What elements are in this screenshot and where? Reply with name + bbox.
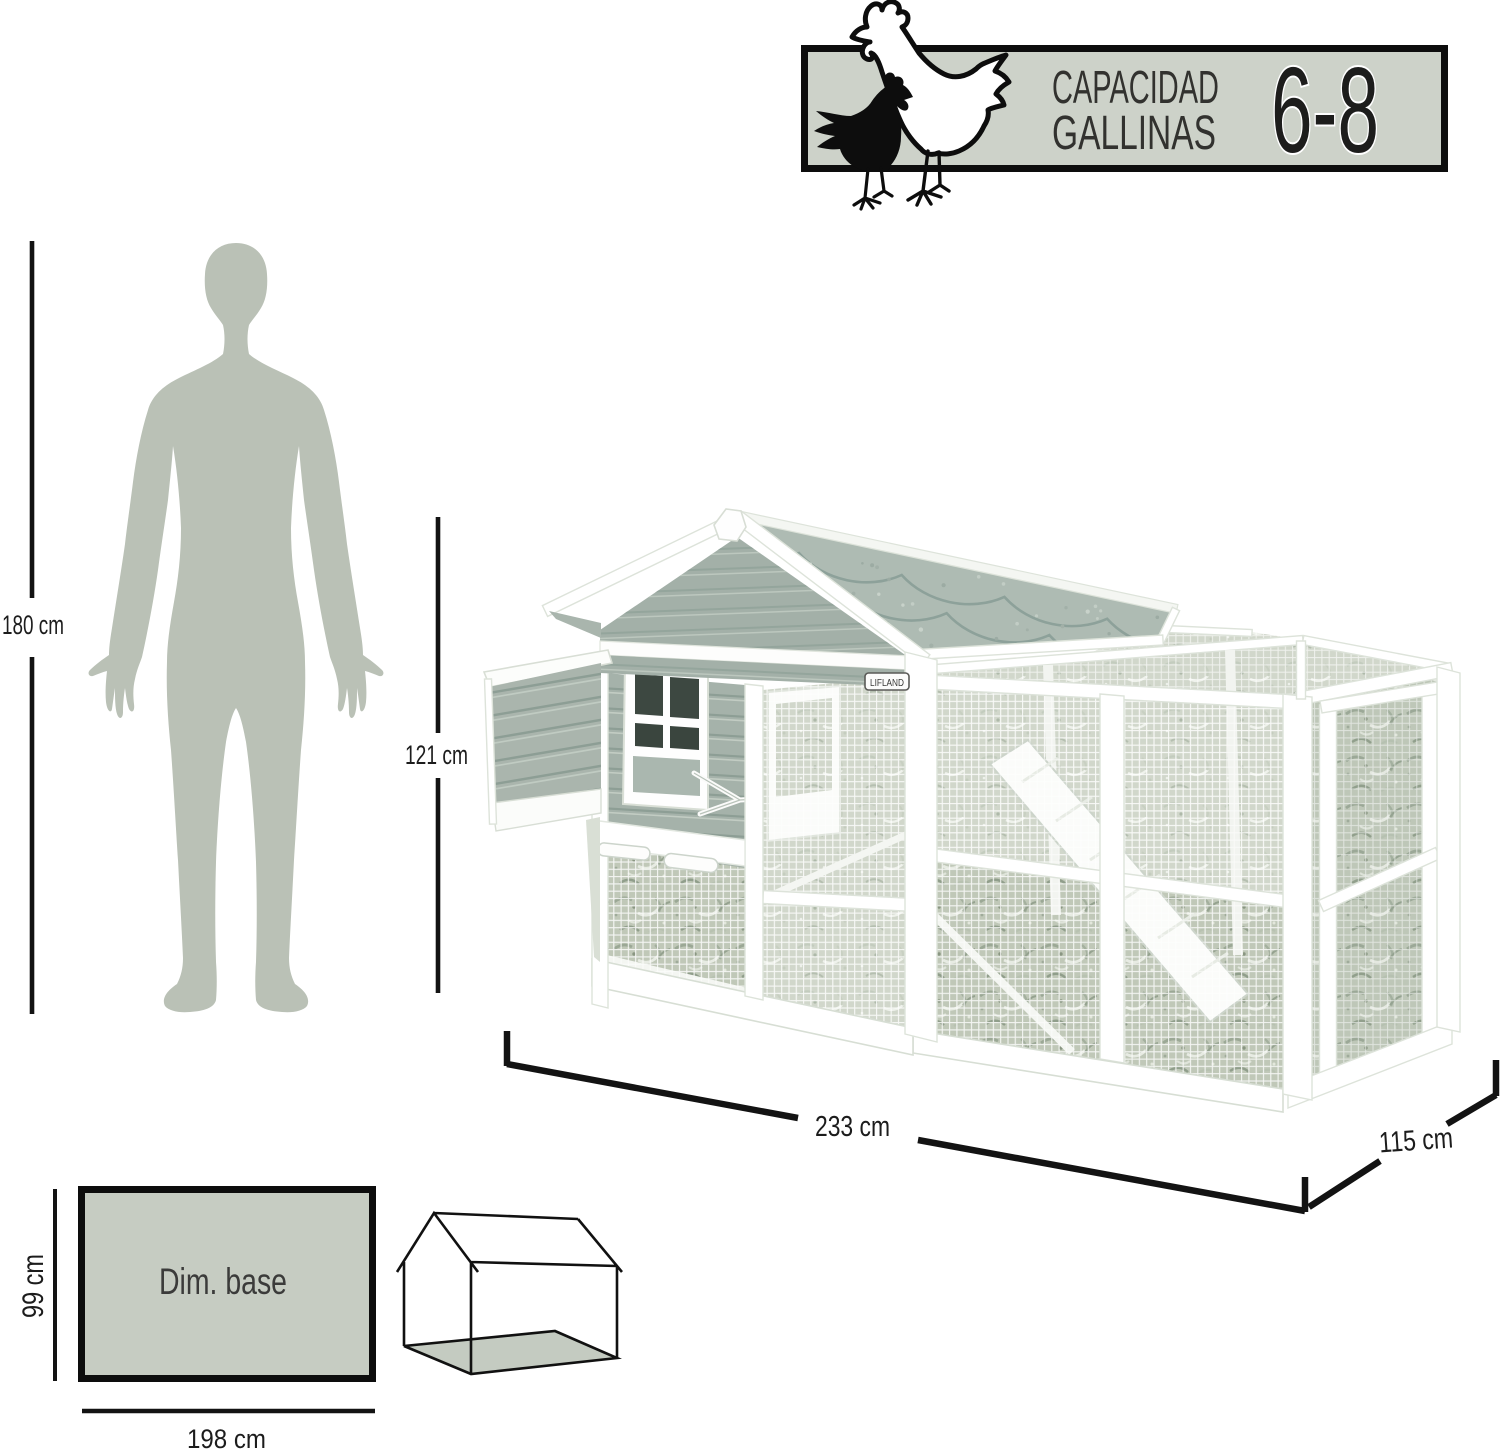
svg-text:121 cm: 121 cm xyxy=(405,740,468,770)
svg-text:Dim. base: Dim. base xyxy=(159,1261,287,1302)
svg-text:198 cm: 198 cm xyxy=(187,1424,266,1451)
svg-text:GALLINAS: GALLINAS xyxy=(1052,107,1216,160)
svg-text:CAPACIDAD: CAPACIDAD xyxy=(1052,61,1219,113)
svg-text:180 cm: 180 cm xyxy=(2,610,64,640)
svg-text:6-8: 6-8 xyxy=(1271,42,1379,178)
svg-text:115 cm: 115 cm xyxy=(1378,1122,1454,1159)
svg-text:99 cm: 99 cm xyxy=(17,1254,50,1318)
svg-text:LIFLAND: LIFLAND xyxy=(870,678,904,689)
svg-text:233 cm: 233 cm xyxy=(815,1111,890,1143)
